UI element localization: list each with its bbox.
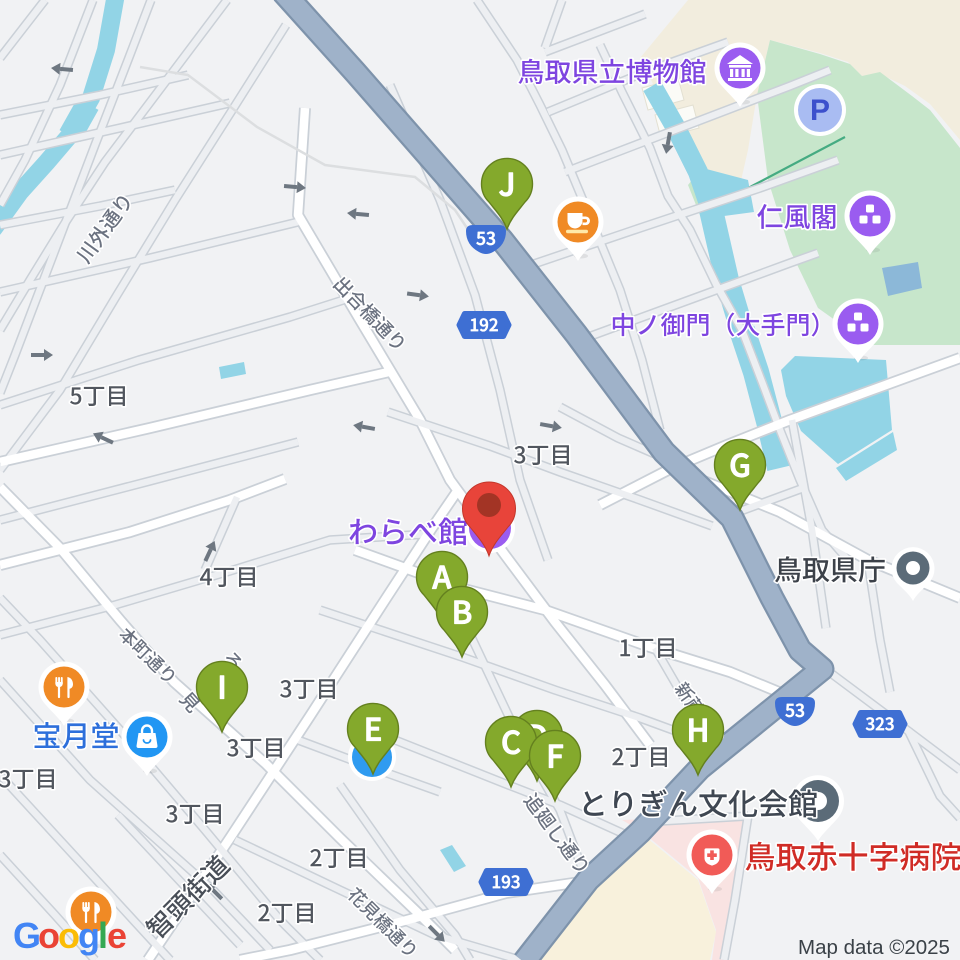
svg-text:o: o bbox=[38, 915, 60, 956]
svg-text:P: P bbox=[810, 94, 830, 127]
svg-text:G: G bbox=[13, 915, 41, 956]
svg-text:e: e bbox=[107, 915, 127, 956]
svg-text:Map data ©2025: Map data ©2025 bbox=[798, 936, 950, 959]
svg-text:g: g bbox=[78, 915, 100, 956]
svg-text:o: o bbox=[58, 915, 80, 956]
